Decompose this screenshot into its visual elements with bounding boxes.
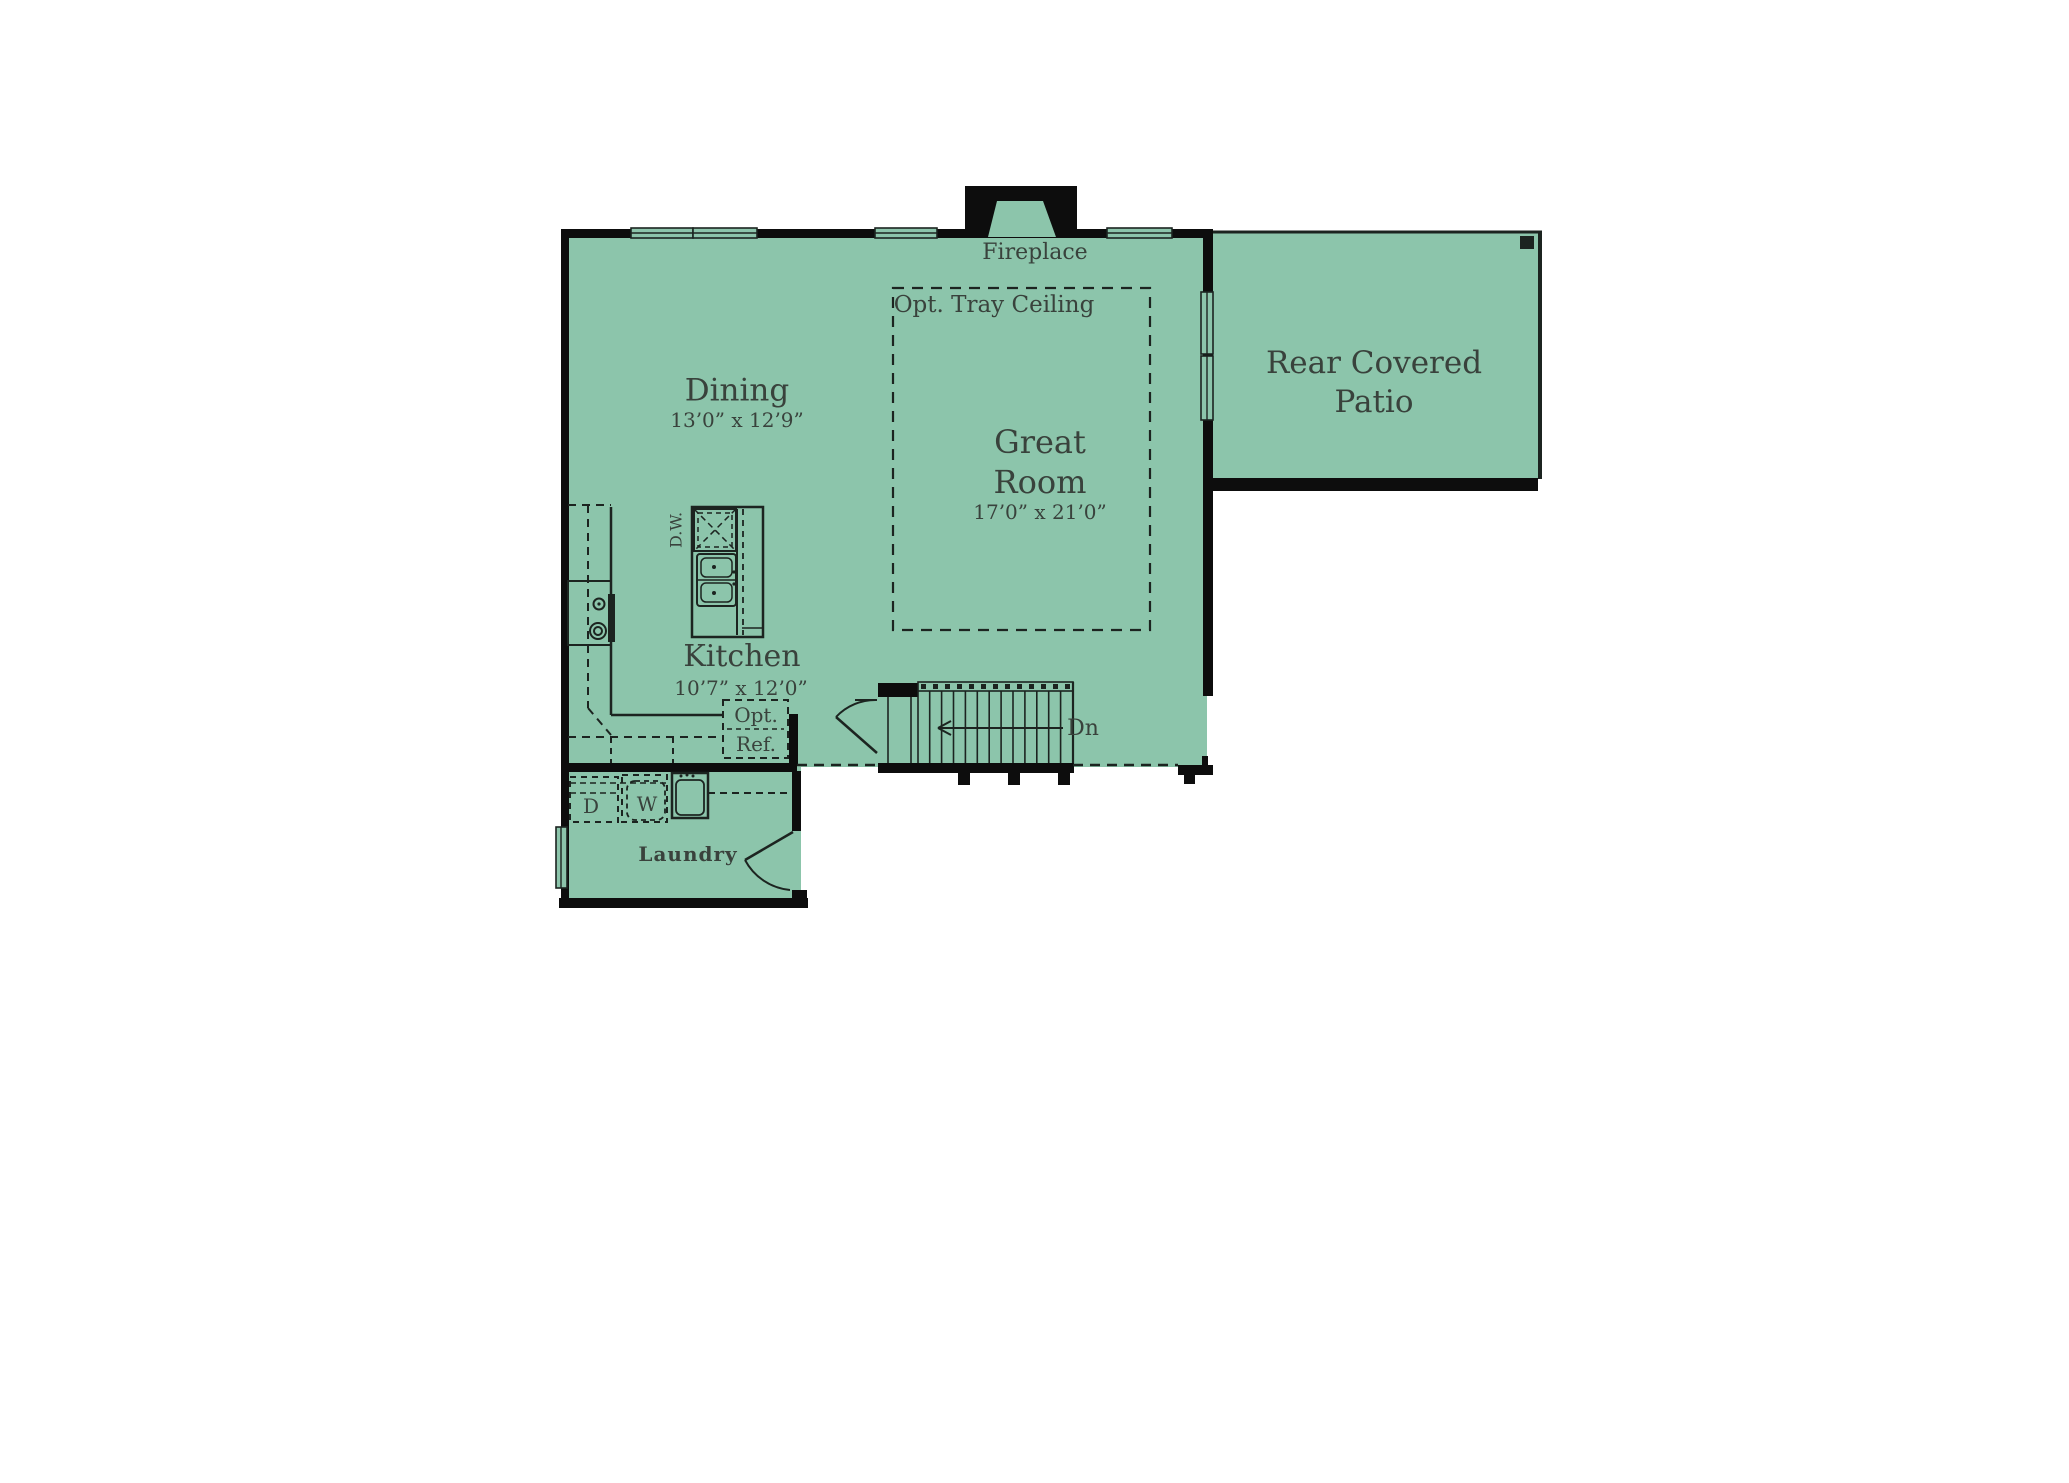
tray-ceiling-label: Opt. Tray Ceiling xyxy=(894,292,1095,320)
floor-areas xyxy=(565,231,1540,900)
floor-plan-drawing xyxy=(0,0,2069,1483)
washer-label: W xyxy=(637,792,658,816)
kitchen-dims: 10’7” x 12’0” xyxy=(674,676,808,700)
great-room-title: GreatRoom xyxy=(994,422,1087,502)
patio-bottom-wall xyxy=(1208,478,1538,491)
floorplan-canvas: Fireplace Opt. Tray Ceiling Dining 13’0”… xyxy=(0,0,2069,1483)
stair-post-1 xyxy=(958,773,970,785)
laundry-bottom-wall xyxy=(559,898,808,908)
right-opening-wall xyxy=(1178,765,1213,775)
dining-room-title: Dining xyxy=(685,372,789,409)
dishwasher-label: D.W. xyxy=(666,512,685,548)
stairs-down-label: Dn xyxy=(1067,716,1099,742)
laundry-floor-area xyxy=(565,767,801,900)
right-wall-tick xyxy=(1202,756,1208,766)
kitchen-title: Kitchen xyxy=(683,639,800,675)
patio-post xyxy=(1520,236,1534,249)
stair-post-2 xyxy=(1008,773,1020,785)
laundry-right-wall xyxy=(792,771,801,831)
stair-bottom-wall xyxy=(878,763,1074,773)
hall-wall-stub xyxy=(789,714,798,766)
laundry-corner-post xyxy=(792,890,807,908)
laundry-title: Laundry xyxy=(638,842,737,866)
great-room-dims: 17’0” x 21’0” xyxy=(973,500,1107,524)
fireplace-label: Fireplace xyxy=(982,240,1087,266)
right-opening-post xyxy=(1184,775,1195,784)
patio-title: Rear CoveredPatio xyxy=(1266,344,1482,422)
fireplace-structure xyxy=(965,186,1077,237)
opt-ref-label: Opt. Ref. xyxy=(734,701,778,759)
dryer-label: D xyxy=(583,794,599,818)
stair-post-3 xyxy=(1058,773,1070,785)
stair-landing-wall xyxy=(878,683,918,697)
kitchen-laundry-wall xyxy=(561,763,797,772)
left-wall xyxy=(561,229,569,907)
dining-room-dims: 13’0” x 12’9” xyxy=(670,408,804,432)
